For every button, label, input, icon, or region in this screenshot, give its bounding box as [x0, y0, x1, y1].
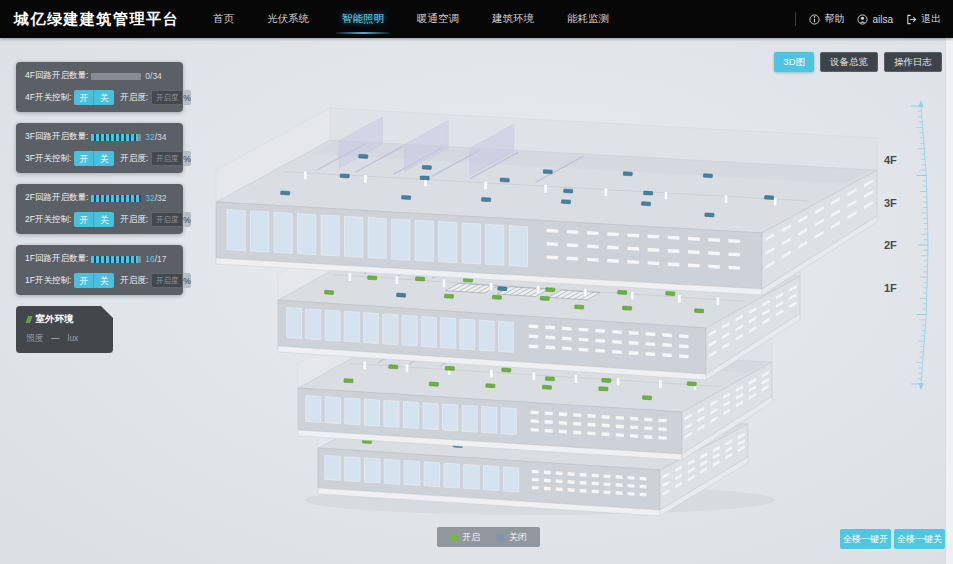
floor-label-2f[interactable]: 2F [884, 239, 897, 251]
circuit-count-label: 2F回路开启数量: [25, 192, 88, 204]
legend-on-swatch [450, 534, 457, 541]
nav-item-home[interactable]: 首页 [211, 7, 236, 31]
circuit-count-label: 1F回路开启数量: [25, 253, 88, 265]
switch-off-button[interactable]: 关 [94, 212, 114, 227]
logout-icon [906, 14, 917, 25]
floor-label-4f[interactable]: 4F [884, 154, 897, 166]
circuit-progressbar [91, 256, 141, 263]
floor-control-column: 4F回路开启数量: 0/34 4F开关控制: 开 关 开启度: % 3F回路开启… [16, 62, 183, 353]
switch-on-button[interactable]: 开 [74, 90, 94, 105]
percent-button[interactable]: % [183, 90, 191, 105]
all-off-button[interactable]: 全楼一键关 [894, 529, 945, 549]
env-metric-unit: lux [68, 333, 79, 343]
floor-panel-1f: 1F回路开启数量: 16/17 1F开关控制: 开 关 开启度: % [16, 245, 183, 295]
legend-off-swatch [497, 534, 504, 541]
circuit-count-value: 32/34 [145, 132, 166, 142]
dim-input[interactable] [151, 212, 183, 227]
dim-label: 开启度: [120, 92, 148, 104]
switch-control-label: 1F开关控制: [25, 275, 71, 287]
env-metric-label: 照度 [26, 333, 43, 345]
circuit-progressbar [91, 134, 141, 141]
dim-input[interactable] [151, 273, 183, 288]
switch-control-label: 2F开关控制: [25, 214, 71, 226]
nav-item-hvac[interactable]: 暖通空调 [415, 7, 461, 31]
user-menu[interactable]: ailsa [857, 14, 893, 25]
outdoor-env-panel: /// 室外环境 照度 — lux [16, 306, 113, 353]
circuit-progressbar [91, 73, 141, 80]
dim-input[interactable] [151, 90, 183, 105]
switch-control-label: 3F开关控制: [25, 153, 71, 165]
dim-input[interactable] [151, 151, 183, 166]
dim-label: 开启度: [120, 214, 148, 226]
floor-label-3f[interactable]: 3F [884, 197, 897, 209]
username: ailsa [872, 14, 893, 25]
nav-item-pv[interactable]: 光伏系统 [265, 7, 311, 31]
switch-off-button[interactable]: 关 [94, 273, 114, 288]
view-toolbar: 3D图 设备总览 操作日志 [774, 52, 942, 72]
device-overview-button[interactable]: 设备总览 [820, 52, 878, 72]
lights-legend: 开启 关闭 [437, 527, 540, 547]
circuit-count-value: 32/32 [145, 193, 166, 203]
switch-off-button[interactable]: 关 [94, 90, 114, 105]
switch-off-button[interactable]: 关 [94, 151, 114, 166]
floor-panel-3f: 3F回路开启数量: 32/34 3F开关控制: 开 关 开启度: % [16, 123, 183, 173]
floor-panel-4f: 4F回路开启数量: 0/34 4F开关控制: 开 关 开启度: % [16, 62, 183, 112]
main-nav: 首页 光伏系统 智能照明 暖通空调 建筑环境 能耗监测 [211, 7, 611, 31]
percent-button[interactable]: % [183, 212, 191, 227]
floor-zoom-ruler[interactable] [911, 100, 928, 390]
circuit-count-label: 3F回路开启数量: [25, 131, 88, 143]
switch-on-button[interactable]: 开 [74, 151, 94, 166]
nav-item-lighting[interactable]: 智能照明 [340, 7, 386, 31]
nav-item-env[interactable]: 建筑环境 [490, 7, 536, 31]
help-icon [809, 14, 820, 25]
building-model[interactable] [216, 108, 877, 516]
legend-off: 关闭 [497, 531, 527, 544]
switch-on-button[interactable]: 开 [74, 212, 94, 227]
all-on-button[interactable]: 全楼一键开 [840, 529, 891, 549]
logout-button[interactable]: 退出 [906, 12, 941, 26]
circuit-count-label: 4F回路开启数量: [25, 70, 88, 82]
env-title: 室外环境 [36, 313, 74, 326]
floor-label-1f[interactable]: 1F [884, 282, 897, 294]
dim-label: 开启度: [120, 153, 148, 165]
legend-on: 开启 [450, 531, 480, 544]
app-title: 城亿绿建建筑管理平台 [14, 10, 179, 29]
view-3d-button[interactable]: 3D图 [774, 52, 814, 72]
circuit-progressbar [91, 195, 141, 202]
switch-control-label: 4F开关控制: [25, 92, 71, 104]
circuit-count-value: 16/17 [145, 254, 166, 264]
env-icon: /// [26, 315, 31, 325]
operation-log-button[interactable]: 操作日志 [884, 52, 942, 72]
building-floor-4f [216, 108, 877, 295]
help-button[interactable]: 帮助 [809, 12, 844, 26]
env-metric-value: — [51, 333, 60, 343]
floor-labels: 4F 3F 2F 1F [884, 154, 897, 294]
bulk-actions: 全楼一键开 全楼一键关 [840, 529, 945, 549]
header-divider [795, 12, 796, 26]
floor-panel-2f: 2F回路开启数量: 32/32 2F开关控制: 开 关 开启度: % [16, 184, 183, 234]
circuit-count-value: 0/34 [145, 71, 162, 81]
switch-on-button[interactable]: 开 [74, 273, 94, 288]
percent-button[interactable]: % [183, 273, 191, 288]
scrollbar[interactable] [945, 38, 953, 564]
top-header: 城亿绿建建筑管理平台 首页 光伏系统 智能照明 暖通空调 建筑环境 能耗监测 帮… [0, 0, 953, 38]
user-avatar-icon [857, 14, 868, 25]
percent-button[interactable]: % [183, 151, 191, 166]
nav-item-energy[interactable]: 能耗监测 [565, 7, 611, 31]
dim-label: 开启度: [120, 275, 148, 287]
